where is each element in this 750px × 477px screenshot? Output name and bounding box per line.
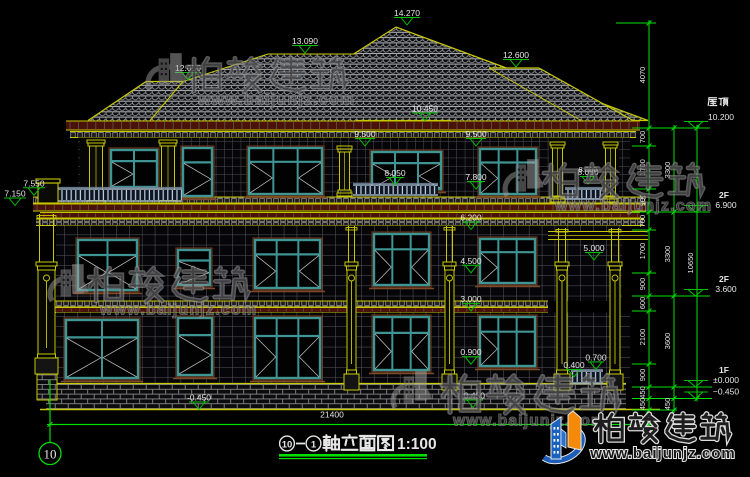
- svg-text:0.700: 0.700: [585, 352, 607, 362]
- svg-text:9.500: 9.500: [465, 129, 487, 139]
- svg-text:0.400: 0.400: [563, 360, 585, 370]
- svg-text:900: 900: [638, 369, 647, 382]
- svg-text:14.270: 14.270: [394, 8, 420, 18]
- svg-text:3.600: 3.600: [715, 284, 737, 294]
- svg-text:10.450: 10.450: [412, 104, 438, 114]
- svg-text:3.000: 3.000: [460, 294, 482, 304]
- svg-text:www.baijunjz.com: www.baijunjz.com: [452, 413, 606, 430]
- svg-text:1: 1: [311, 440, 317, 451]
- svg-text:700: 700: [638, 215, 647, 228]
- svg-text:www.baijunjz.com: www.baijunjz.com: [589, 445, 735, 462]
- svg-text:6.900: 6.900: [715, 200, 737, 210]
- svg-text:2F: 2F: [719, 274, 729, 284]
- svg-text:7.550: 7.550: [23, 178, 45, 188]
- svg-text:4070: 4070: [638, 67, 647, 84]
- svg-text:8.050: 8.050: [384, 168, 406, 178]
- svg-text:±0.000: ±0.000: [713, 375, 739, 385]
- svg-text:450: 450: [638, 386, 647, 399]
- svg-text:21400: 21400: [320, 410, 344, 420]
- svg-text:1700: 1700: [638, 243, 647, 260]
- svg-text:−0.450: −0.450: [713, 387, 740, 397]
- svg-text:0.900: 0.900: [460, 347, 482, 357]
- svg-text:7.150: 7.150: [4, 189, 26, 199]
- svg-text:12.600: 12.600: [503, 50, 529, 60]
- svg-text:2100: 2100: [638, 329, 647, 346]
- svg-text:3300: 3300: [663, 246, 672, 263]
- svg-text:2F: 2F: [719, 190, 729, 200]
- svg-text:10650: 10650: [686, 253, 695, 274]
- svg-text:13.090: 13.090: [292, 36, 318, 46]
- svg-text:900: 900: [638, 278, 647, 291]
- svg-text:-0.450: -0.450: [187, 393, 211, 403]
- svg-text:10: 10: [44, 447, 57, 462]
- svg-text:6.200: 6.200: [460, 213, 482, 223]
- svg-text:4.500: 4.500: [460, 256, 482, 266]
- svg-text:3600: 3600: [663, 333, 672, 350]
- svg-text:www.baijunjz.com: www.baijunjz.com: [99, 302, 257, 319]
- svg-text:450: 450: [638, 398, 647, 411]
- svg-text:700: 700: [638, 131, 647, 144]
- svg-text:10: 10: [282, 440, 293, 451]
- svg-text:600: 600: [638, 297, 647, 310]
- svg-text:9.500: 9.500: [354, 129, 376, 139]
- svg-text:450: 450: [663, 398, 672, 411]
- svg-text:7.800: 7.800: [465, 172, 487, 182]
- svg-text:1F: 1F: [719, 365, 729, 375]
- svg-text:5.000: 5.000: [583, 243, 605, 253]
- svg-text:www.baijunjz.com: www.baijunjz.com: [197, 92, 355, 109]
- svg-text:1:100: 1:100: [397, 436, 437, 453]
- svg-text:www.baijunjz.com: www.baijunjz.com: [554, 198, 712, 215]
- svg-text:10.200: 10.200: [708, 112, 734, 122]
